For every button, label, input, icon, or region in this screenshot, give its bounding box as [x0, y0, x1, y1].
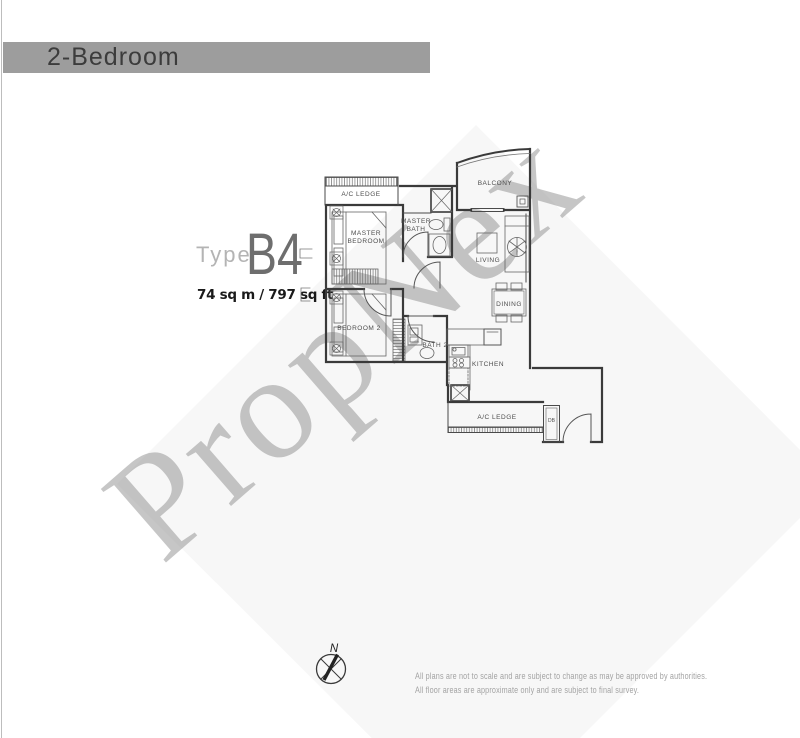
room-label-master-line2: BEDROOM — [347, 238, 384, 245]
room-label-balcony: BALCONY — [478, 180, 513, 187]
room-label-ac-ledge-top: A/C LEDGE — [341, 191, 380, 198]
room-label-kitchen: KITCHEN — [472, 361, 504, 368]
master-wardrobe — [332, 269, 378, 284]
room-label-dining: DINING — [496, 301, 522, 308]
room-label-bath2: BATH 2 — [422, 342, 447, 349]
room-label-living: LIVING — [476, 257, 500, 264]
disclaimer-line-1: All plans are not to scale and are subje… — [415, 669, 707, 683]
room-label-master-line1: MASTER — [351, 230, 381, 237]
compass-north-label: N — [330, 643, 339, 655]
room-label-db: DB — [548, 418, 556, 424]
disclaimer: All plans are not to scale and are subje… — [415, 669, 707, 697]
ac-ledge-bottom-hatch — [448, 428, 543, 433]
ac-ledge-top-hatch — [326, 178, 397, 187]
floor-plan-image: PropNex — [0, 0, 800, 738]
floor-plan-page: 2-Bedroom Type B4 74 sq m / 797 sq ft Pr… — [0, 0, 800, 738]
room-label-master-bath-line1: MASTER — [401, 218, 431, 225]
room-label-master-bath-line2: BATH — [407, 226, 426, 233]
room-label-bedroom2: BEDROOM 2 — [337, 325, 381, 332]
disclaimer-line-2: All floor areas are approximate only and… — [415, 683, 707, 697]
room-label-ac-ledge-bottom: A/C LEDGE — [477, 414, 516, 421]
